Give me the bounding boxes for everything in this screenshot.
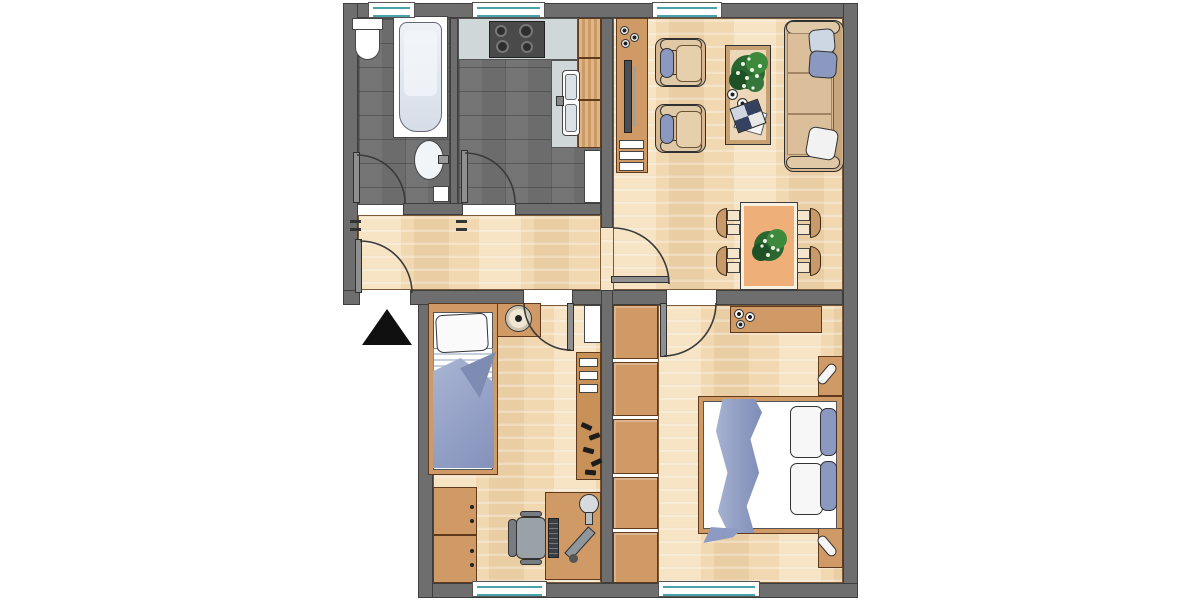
stove-burner bbox=[521, 41, 533, 53]
desk-lamp bbox=[579, 494, 599, 514]
window-glass bbox=[373, 7, 410, 17]
closet-door bbox=[613, 419, 658, 474]
closet-door bbox=[613, 362, 658, 416]
closet-door bbox=[613, 532, 658, 583]
kitchen-living-divider-wall bbox=[601, 18, 613, 228]
hall-bottom-wall-b bbox=[572, 290, 667, 305]
central-vertical-wall bbox=[601, 290, 613, 583]
dining-chair-seat bbox=[797, 262, 810, 273]
bed-pillow-blue bbox=[820, 408, 837, 456]
kitchen-sink-basin bbox=[565, 74, 577, 100]
drawer-handle bbox=[470, 549, 474, 553]
bed-pillow-white bbox=[790, 463, 823, 515]
white-wall-cabinet bbox=[584, 305, 601, 343]
office-chair-back bbox=[508, 519, 517, 557]
office-chair-armrest bbox=[520, 511, 542, 517]
dining-chair-seat bbox=[727, 248, 740, 259]
shelf-board bbox=[579, 358, 598, 367]
bathroom-door-jamb bbox=[350, 228, 361, 231]
toilet-bowl bbox=[355, 29, 380, 60]
drawer-handle bbox=[470, 505, 474, 509]
speaker-decor bbox=[621, 39, 630, 48]
dining-chair-back bbox=[716, 208, 727, 238]
armchair-seat bbox=[676, 45, 702, 82]
armchair-seat bbox=[676, 111, 702, 148]
refrigerator bbox=[584, 150, 601, 203]
kitchen-cabinet-column bbox=[578, 18, 601, 148]
bathroom-window bbox=[368, 2, 415, 18]
cup bbox=[727, 89, 738, 100]
dining-chair-seat bbox=[797, 224, 810, 235]
bedroom2-door-leaf bbox=[660, 303, 667, 357]
kitchen-door-jamb bbox=[456, 220, 467, 223]
flat-tv bbox=[624, 60, 632, 133]
dining-chair-seat bbox=[797, 248, 810, 259]
dining-chair-seat bbox=[727, 210, 740, 221]
hallway-floor bbox=[358, 215, 601, 290]
keyboard bbox=[548, 518, 559, 558]
tv-shelf-slat bbox=[619, 162, 644, 171]
tv-stand-line bbox=[633, 66, 636, 127]
window-glass bbox=[477, 7, 540, 17]
window-glass bbox=[657, 7, 717, 17]
office-chair-armrest bbox=[520, 559, 542, 565]
hall-top-wall-b bbox=[515, 203, 601, 215]
dining-chair-back bbox=[716, 246, 727, 276]
bathroom-faucet bbox=[438, 155, 449, 164]
dining-chair-seat bbox=[727, 224, 740, 235]
kitchen-door-jamb bbox=[456, 228, 467, 231]
entrance-arrow-marker bbox=[362, 309, 412, 345]
living-room-window bbox=[652, 2, 722, 18]
bedroom2-sideboard bbox=[730, 306, 822, 333]
speaker-decor bbox=[620, 26, 629, 35]
window-glass bbox=[477, 586, 542, 596]
bed-pillow-white bbox=[435, 313, 489, 354]
shelf-board bbox=[579, 371, 598, 380]
closet-door bbox=[613, 305, 658, 359]
kitchen-window bbox=[472, 2, 545, 18]
cabinet-divider bbox=[578, 99, 601, 101]
chest-divider bbox=[433, 534, 477, 536]
bathroom-door-leaf bbox=[353, 152, 360, 203]
shelf-board bbox=[579, 384, 598, 393]
closet-door bbox=[613, 477, 658, 529]
bedroom1-door-leaf bbox=[567, 303, 574, 351]
sofa-pillow-white bbox=[805, 126, 840, 162]
armchair-back-pillow bbox=[660, 48, 674, 78]
bathtub-highlight bbox=[404, 30, 437, 96]
bed-pillow-white bbox=[790, 406, 823, 458]
bathroom-door-jamb bbox=[350, 220, 361, 223]
stove-burner bbox=[495, 25, 507, 37]
tv-shelf-slat bbox=[619, 151, 644, 160]
bedroom2-window bbox=[658, 581, 760, 597]
bathroom-bin bbox=[433, 186, 449, 202]
floor-plan bbox=[0, 0, 1200, 600]
bed-pillow-blue bbox=[820, 461, 837, 511]
entrance-door-leaf bbox=[355, 239, 362, 293]
living-room-door-leaf bbox=[611, 276, 669, 283]
kitchen-faucet bbox=[556, 96, 564, 106]
exterior-wall-right bbox=[843, 3, 858, 598]
bedroom2-top-wall bbox=[716, 290, 843, 305]
hall-top-wall-a bbox=[403, 203, 463, 215]
alarm-clock-center bbox=[515, 315, 522, 322]
tv-shelf-slat bbox=[619, 140, 644, 149]
bath-kitchen-divider-wall bbox=[450, 18, 458, 206]
desk-lamp-stem bbox=[585, 512, 593, 525]
decor-bowl bbox=[734, 309, 744, 319]
office-chair-seat bbox=[516, 517, 546, 559]
kitchen-sink-basin bbox=[565, 104, 577, 132]
cabinet-divider bbox=[578, 57, 601, 59]
sofa-pillow-blue bbox=[808, 50, 838, 79]
speaker-decor bbox=[630, 33, 639, 42]
dining-chair-seat bbox=[797, 210, 810, 221]
armchair-back-pillow bbox=[660, 114, 674, 144]
bedroom1-window bbox=[472, 581, 547, 597]
window-glass bbox=[663, 586, 755, 596]
drawer-handle bbox=[470, 519, 474, 523]
coat-hook bbox=[585, 470, 596, 476]
drawer-handle bbox=[470, 563, 474, 567]
stove-burner bbox=[496, 40, 509, 53]
sofa-cushion bbox=[787, 73, 832, 114]
monitor-foot bbox=[569, 554, 578, 563]
dining-chair-seat bbox=[727, 262, 740, 273]
decor-bowl bbox=[736, 320, 745, 329]
stove-burner bbox=[519, 24, 533, 38]
decor-bowl bbox=[745, 312, 755, 322]
kitchen-door-leaf bbox=[461, 150, 468, 203]
dining-table bbox=[740, 202, 798, 290]
